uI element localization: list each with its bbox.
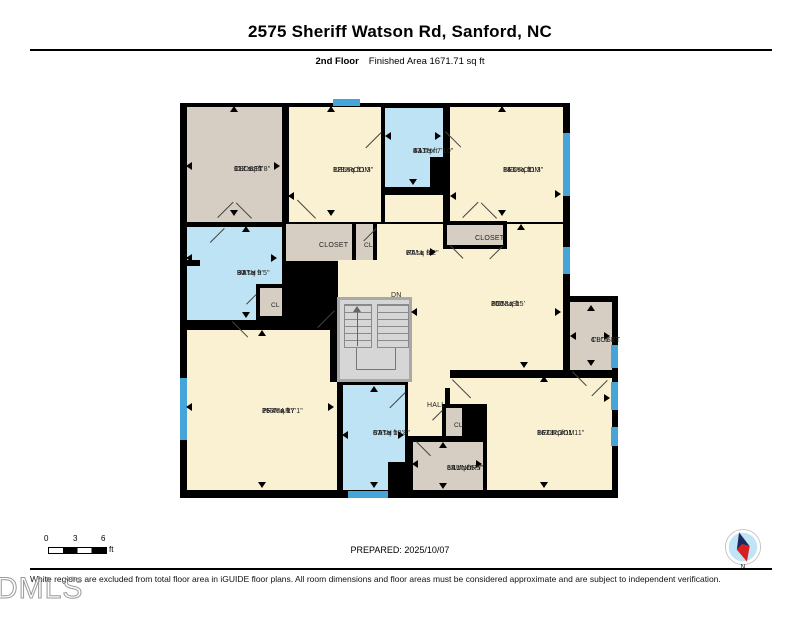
dimension-arrow-icon: [370, 482, 378, 488]
dimension-arrow-icon: [412, 460, 418, 468]
window-bedroom-br-1: [611, 382, 618, 410]
dimension-arrow-icon: [242, 312, 250, 318]
dimension-arrow-icon: [498, 106, 506, 112]
dimension-arrow-icon: [288, 192, 294, 200]
page-title: 2575 Sheriff Watson Rd, Sanford, NC: [0, 22, 800, 42]
dimension-arrow-icon: [570, 332, 576, 340]
dimension-arrow-icon: [271, 254, 277, 262]
stairs-direction-line: [357, 312, 358, 346]
window-closet-right: [611, 345, 618, 368]
dimension-arrow-icon: [274, 162, 280, 170]
dimension-arrow-icon: [258, 482, 266, 488]
stairs-up-arrow-icon: [353, 306, 361, 312]
dimension-arrow-icon: [327, 210, 335, 216]
dimension-arrow-icon: [555, 190, 561, 198]
dimension-arrow-icon: [230, 210, 238, 216]
floor-subtitle: 2nd FloorFinished Area 1671.71 sq ft: [0, 56, 800, 67]
scale-tick-3: 3: [73, 534, 77, 543]
dimension-arrow-icon: [439, 442, 447, 448]
dimension-arrow-icon: [258, 330, 266, 336]
window-bonus: [563, 247, 570, 274]
floor-label: 2nd Floor: [316, 56, 359, 67]
dimension-arrow-icon: [328, 403, 334, 411]
window-bath-bottom: [348, 491, 388, 498]
room-bedroom-top-2: [450, 107, 563, 222]
window-bedroom-t2: [563, 133, 570, 196]
room-closet-top-left: [187, 107, 282, 222]
dimension-arrow-icon: [186, 162, 192, 170]
compass-icon: [724, 528, 762, 566]
dimension-arrow-icon: [520, 362, 528, 368]
dimension-arrow-icon: [186, 403, 192, 411]
dimension-arrow-icon: [517, 224, 525, 230]
wall-bath-notch: [430, 157, 443, 187]
dimension-arrow-icon: [555, 308, 561, 316]
window-bedroom-br-2: [611, 427, 618, 446]
prepared-date: PREPARED: 2025/10/07: [0, 545, 800, 555]
dimension-arrow-icon: [230, 106, 238, 112]
dimension-arrow-icon: [370, 386, 378, 392]
dimension-arrow-icon: [587, 360, 595, 366]
dimension-arrow-icon: [435, 132, 441, 140]
floor-plan: CLOSET9'8" x 11'8"113 sq ft BEDROOM12'5"…: [180, 100, 618, 498]
dimension-arrow-icon: [385, 132, 391, 140]
floorplan-page: 2575 Sheriff Watson Rd, Sanford, NC 2nd …: [0, 0, 800, 618]
footer-divider: [30, 568, 772, 570]
dimension-arrow-icon: [409, 179, 417, 185]
stairs-treads-right: [377, 304, 409, 348]
dimension-arrow-icon: [242, 226, 250, 232]
dimension-arrow-icon: [498, 210, 506, 216]
finished-area-label: Finished Area 1671.71 sq ft: [369, 56, 485, 67]
dimension-arrow-icon: [587, 305, 595, 311]
dimension-arrow-icon: [604, 394, 610, 402]
dimension-arrow-icon: [186, 254, 192, 262]
window-top: [333, 99, 360, 106]
dimension-arrow-icon: [342, 431, 348, 439]
disclaimer-text: White regions are excluded from total fl…: [30, 574, 770, 584]
dimension-arrow-icon: [439, 483, 447, 489]
stairs-rail: [356, 348, 396, 370]
scale-tick-0: 0: [44, 534, 48, 543]
corridor-under-bath: [385, 195, 443, 222]
stairs: [337, 297, 412, 382]
dimension-arrow-icon: [540, 482, 548, 488]
dimension-arrow-icon: [540, 376, 548, 382]
wall-bath-bottom-notch: [388, 462, 405, 490]
dimension-arrow-icon: [411, 308, 417, 316]
hall-to-stairs: [338, 260, 380, 300]
scale-tick-6: 6: [101, 534, 105, 543]
dimension-arrow-icon: [327, 106, 335, 112]
mls-watermark: DMLS: [0, 572, 83, 606]
header-divider: [30, 49, 772, 51]
dimension-arrow-icon: [450, 192, 456, 200]
